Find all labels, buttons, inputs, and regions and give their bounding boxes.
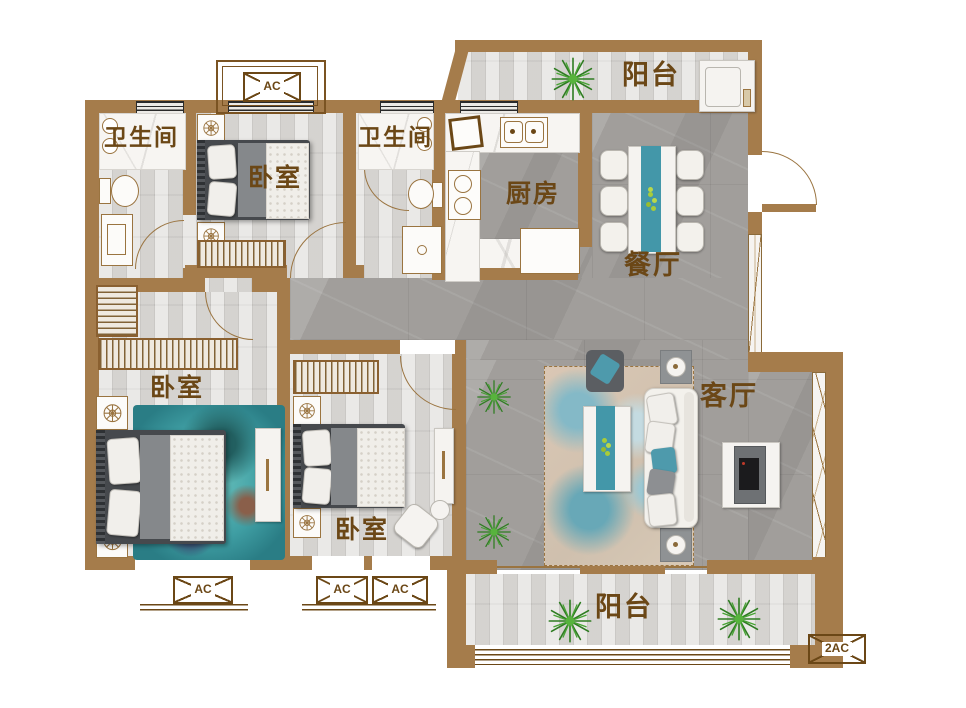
washing-machine-panel	[743, 89, 751, 107]
bedroom-left-label: 卧室	[150, 376, 204, 401]
compass-icon	[298, 401, 316, 421]
living-lamp-1-dot	[673, 364, 678, 369]
bedmid-nightstand-2	[293, 508, 321, 538]
bedmid-blanket	[331, 428, 357, 505]
bedmid-desk-handle	[442, 451, 445, 479]
bedtop-wardrobe	[197, 240, 286, 268]
dining-table-decor	[648, 192, 653, 197]
bedtop-pillow-1	[207, 144, 237, 180]
bedmid-headboard	[293, 424, 301, 508]
living-armchair	[586, 350, 624, 392]
washing-machine	[699, 60, 755, 112]
tv-power-led	[742, 462, 745, 465]
bedleft-duvet	[170, 435, 224, 541]
balcony-railing	[475, 649, 790, 665]
wall-balcony-div-c	[707, 560, 820, 574]
ac-unit-bottom-left: AC	[173, 576, 233, 604]
living-lamp-2-dot	[673, 542, 678, 547]
bedleft-wardrobe	[98, 338, 238, 370]
floorplan-canvas: AC AC AC AC 2AC 阳台 卫生间 卧室 卫生间	[0, 0, 966, 708]
bathroom-1-toilet-tank	[99, 178, 111, 204]
bathroom-1-toilet-bowl	[111, 175, 139, 207]
bedmid-duvet	[357, 428, 405, 507]
kitchen-stove	[448, 170, 481, 220]
bedleft-blanket	[140, 435, 170, 539]
ac-unit-top-label: AC	[260, 80, 283, 93]
ac-unit-top: AC	[243, 72, 301, 102]
compass-icon	[102, 402, 123, 424]
wall-bedmid-south-b	[364, 556, 372, 570]
wall-east-living	[826, 352, 843, 572]
bedmid-nightstand-1	[293, 396, 321, 426]
wall-bedmid-north-b	[455, 340, 466, 354]
plant-living-1	[476, 379, 512, 415]
bedmid-pillow-1	[302, 429, 332, 467]
bedmid-window-sill	[302, 604, 436, 614]
hall-floor	[290, 278, 748, 340]
sliding-door-2	[665, 566, 707, 568]
wall-east-stub	[748, 212, 762, 234]
kitchen-fridge-line	[521, 234, 579, 235]
wall-bedtop-south-b	[345, 265, 364, 278]
bedleft-dresser	[255, 428, 281, 522]
bedroom-top-label: 卧室	[248, 166, 302, 191]
bathroom-1-vanity	[101, 214, 133, 266]
wall-kitchen-east	[578, 113, 592, 247]
living-east-window	[812, 372, 826, 559]
sofa-pillow-3	[646, 493, 677, 528]
kitchen-faucet-dot-2	[531, 129, 536, 134]
dining-chair-4	[676, 150, 704, 180]
bedroom-mid-label: 卧室	[335, 518, 389, 543]
wall-balcony-corner-l	[447, 645, 475, 668]
living-sofa-back	[684, 392, 694, 522]
wall-bedmid-south-a	[290, 556, 312, 570]
living-coffee-table-decor	[602, 438, 607, 443]
ac-unit-bottom-right-label: 2AC	[822, 642, 852, 655]
kitchen-burner-2	[454, 197, 472, 215]
bathroom-2-shower	[402, 226, 442, 274]
bedleft-nightstand-1	[96, 396, 128, 430]
bedleft-pillow-1	[106, 437, 141, 485]
bedleft-pillow-2	[106, 489, 142, 538]
wall-bedmid-north-a	[290, 340, 400, 354]
bedtop-pillow-2	[207, 181, 238, 217]
bedleft-window-sill	[140, 604, 248, 614]
dining-chair-1	[600, 150, 628, 180]
plant-balcony-bottom-2	[716, 596, 762, 642]
sliding-door-1	[497, 566, 580, 568]
bedmid-wardrobe	[293, 360, 379, 394]
wall-corridor-south-b	[252, 278, 290, 292]
bedtop-headboard	[197, 140, 205, 220]
living-label: 客厅	[700, 383, 758, 410]
bathroom-1-vanity-basin	[107, 224, 126, 255]
kitchen-pass-floor	[578, 247, 592, 280]
compass-icon	[202, 119, 220, 137]
dining-chair-3	[600, 222, 628, 252]
wall-balcony-top	[455, 40, 762, 52]
compass-icon	[298, 513, 316, 533]
dining-table-runner	[641, 146, 661, 252]
washing-machine-door	[705, 67, 741, 107]
balcony-top-label: 阳台	[622, 62, 680, 89]
bathroom-1-label: 卫生间	[104, 126, 179, 149]
living-coffee-table-runner	[596, 406, 615, 490]
kitchen-faucet-dot-1	[510, 129, 515, 134]
bathroom-2-toilet-bowl	[408, 179, 434, 209]
ac-unit-bottom-left-label: AC	[191, 583, 214, 596]
bedtop-nightstand-1	[197, 114, 225, 142]
kitchen-fridge	[520, 228, 580, 274]
entry-door-leaf	[762, 204, 816, 212]
wall-bedleft-south-a	[85, 556, 135, 570]
ac-unit-bottom-mid-1: AC	[316, 576, 368, 604]
dining-chair-2	[600, 186, 628, 216]
living-side-table-2	[660, 528, 692, 562]
living-side-table-1	[660, 350, 692, 384]
kitchen-cutting-board	[448, 115, 484, 151]
kitchen-burner-1	[454, 175, 472, 193]
kitchen-label: 厨房	[506, 182, 560, 207]
bathroom-2-label: 卫生间	[358, 126, 433, 149]
bedleft-headboard	[96, 430, 105, 544]
plant-balcony-bottom-1	[547, 598, 593, 644]
entry-door-arc	[762, 151, 817, 205]
kitchen-sink	[500, 117, 548, 148]
bedmid-desk	[434, 428, 454, 504]
balcony-bottom-label: 阳台	[595, 594, 653, 621]
entry-side-window	[748, 234, 762, 354]
dining-label: 餐厅	[624, 252, 682, 279]
ac-unit-bottom-right: 2AC	[808, 634, 866, 664]
dining-chair-6	[676, 222, 704, 252]
plant-balcony-top	[550, 56, 596, 102]
bedleft-dresser-handle	[266, 459, 269, 491]
plant-living-2	[476, 514, 512, 550]
ac-unit-bottom-mid-2: AC	[372, 576, 428, 604]
ac-unit-bottom-mid-2-label: AC	[388, 583, 411, 596]
bedmid-pillow-2	[301, 467, 332, 505]
living-armchair-pillow	[589, 353, 620, 385]
bedmid-side-table	[430, 500, 450, 520]
ac-unit-bottom-mid-1-label: AC	[330, 583, 353, 596]
bathroom-2-shower-drain	[417, 245, 427, 255]
bedleft-closet	[96, 285, 138, 337]
dining-chair-5	[676, 186, 704, 216]
